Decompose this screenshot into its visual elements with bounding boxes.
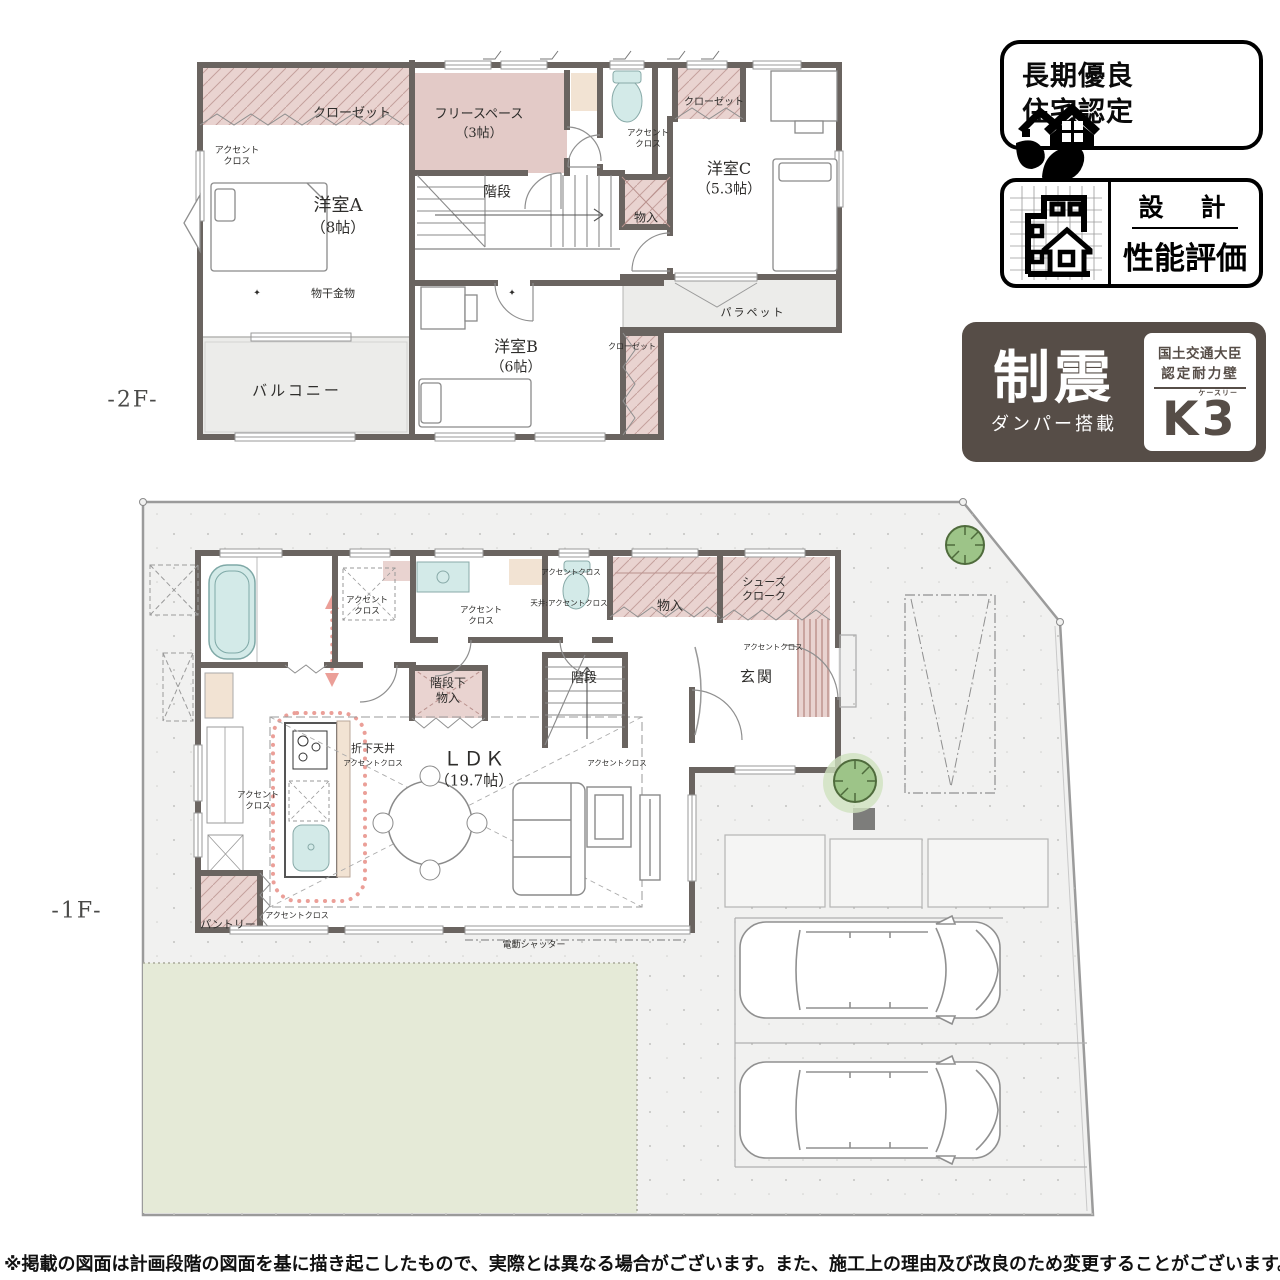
floor-1f-label: -1F- [51, 899, 102, 924]
label-room-c: 洋室C [707, 159, 751, 179]
site-plan-1f-drawing [135, 495, 1145, 1225]
label-free-space-size: （3帖） [455, 126, 502, 142]
label-parapet: パラペット [721, 306, 786, 320]
badge-design-top: 設 計 [1132, 188, 1237, 229]
label-genkan: 玄関 [740, 668, 774, 687]
floor-plan-page: -2F- -1F- クローゼット アクセント クロス 洋室A （8帖） 物干金物… [0, 0, 1280, 1280]
label-pantry: パントリー [200, 918, 256, 932]
badge-seismic-title: 制震 [972, 349, 1136, 406]
label-free-space: フリースペース [435, 107, 524, 123]
label-room-a: 洋室A [314, 195, 363, 218]
label-room-a-size: （8帖） [311, 219, 366, 238]
label-room-b-size: （6帖） [491, 359, 542, 377]
label-closet-c: クローゼット [684, 97, 744, 110]
label-stairs-2f: 階段 [483, 184, 511, 202]
badge-k3-k: K [1162, 398, 1198, 443]
label-dropped-ceiling-accent: アクセントクロス [343, 758, 403, 767]
label-room-b: 洋室B [494, 337, 538, 357]
label-accent-cross-2f-a: アクセント クロス [215, 146, 260, 169]
badge-mlit-line1: 国土交通大臣 [1158, 342, 1242, 362]
badge-long-term-line1: 長期優良 [1022, 59, 1134, 95]
label-electric-shutter: 電動シャッター [502, 940, 565, 951]
floor-2f-label: -2F- [107, 388, 158, 413]
badge-seismic-sub: ダンパー搭載 [972, 410, 1136, 436]
label-shoes-cloak: シューズ クローク [742, 575, 786, 603]
label-ldk-size: （19.7帖） [435, 772, 513, 791]
label-accent-cross-wc: アクセントクロス [541, 567, 601, 576]
badge-mlit-line2: 認定耐力壁 [1161, 362, 1239, 382]
label-storage-2f: 物入 [634, 211, 658, 226]
label-closet-b: クローゼット [608, 342, 656, 352]
label-accent-cross-washroom: アクセント クロス [346, 595, 388, 616]
label-closet-a: クローゼット [313, 106, 391, 122]
badge-design-performance: 設 計 性能評価 [1000, 178, 1263, 288]
label-under-stairs-storage: 階段下 物入 [430, 676, 466, 706]
label-stairs-1f: 階段 [571, 671, 597, 687]
label-drying-fixture: 物干金物 [311, 287, 355, 301]
badge-design-bottom: 性能評価 [1123, 233, 1247, 278]
label-accent-cross-kitchen: アクセントクロス [265, 911, 329, 921]
label-accent-cross-genkan: アクセントクロス [743, 642, 803, 651]
badge-k3-panel: 国土交通大臣 認定耐力壁 K ケースリー 3 [1144, 333, 1256, 451]
badge-k3-three: 3 [1202, 398, 1235, 443]
label-dropped-ceiling: 折下天井 [351, 742, 395, 756]
label-accent-cross-vanity: アクセント クロス [460, 605, 502, 626]
diamond-mark-icon: ✦ [508, 288, 516, 299]
diamond-mark-icon: ✦ [253, 288, 261, 299]
label-ceiling-accent-cross: 天井:アクセントクロス [530, 598, 607, 607]
label-balcony: バルコニー [252, 382, 342, 401]
label-room-c-size: （5.3帖） [697, 181, 761, 199]
label-ldk: ＬＤＫ [443, 747, 506, 772]
label-accent-cross-sofa: アクセントクロス [587, 758, 647, 767]
label-accent-cross-left: アクセント クロス [237, 790, 279, 811]
badge-long-term-housing: 長期優良 住宅認定 [1000, 40, 1263, 150]
label-accent-cross-2f-wc: アクセント クロス [627, 128, 669, 149]
label-storage-1f: 物入 [657, 599, 683, 615]
disclaimer-text: ※掲載の図面は計画段階の図面を基に描き起こしたもので、実際とは異なる場合がござい… [4, 1250, 1278, 1276]
house-grid-logo-icon [1004, 182, 1111, 284]
badge-seismic-damper: 制震 ダンパー搭載 国土交通大臣 認定耐力壁 K ケースリー 3 [962, 322, 1266, 462]
